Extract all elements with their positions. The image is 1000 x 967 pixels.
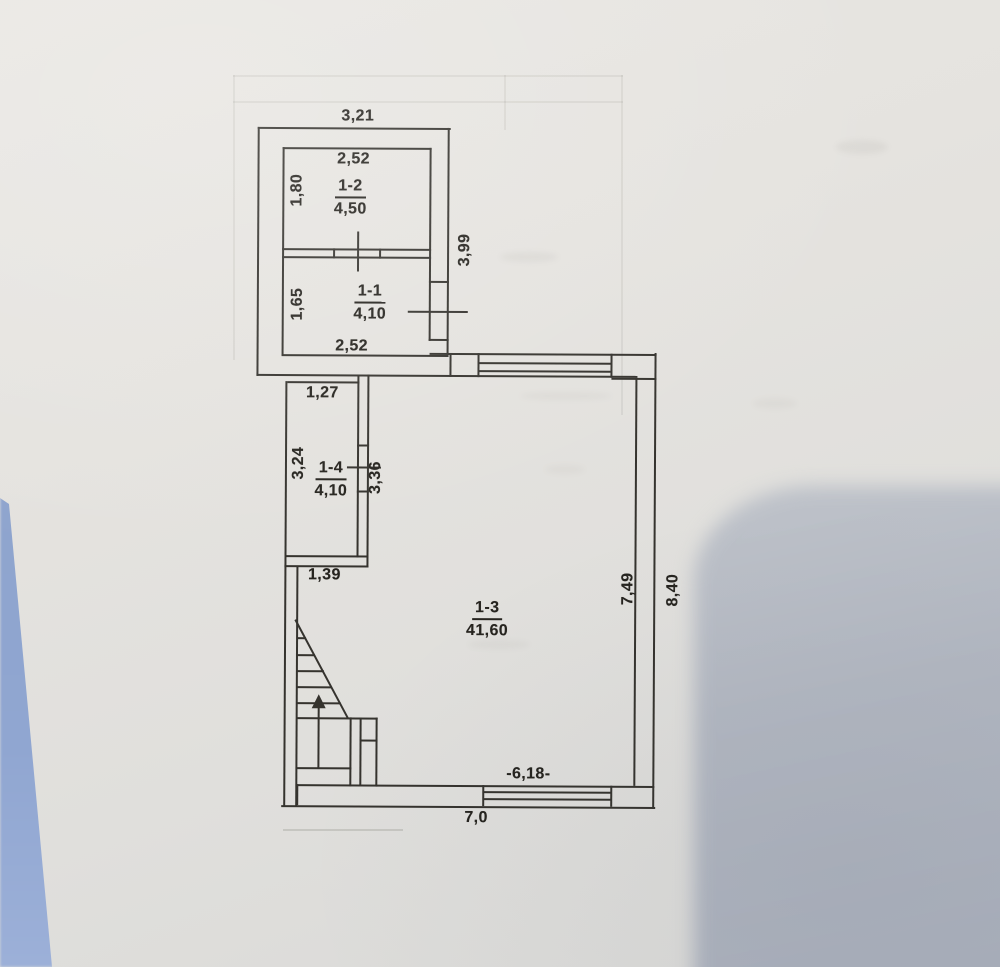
wall-divider — [357, 444, 369, 446]
room-area: 4,10 — [314, 482, 347, 500]
stair-step — [297, 654, 315, 656]
wall-line — [282, 147, 285, 355]
wall-line — [287, 381, 359, 383]
wall-divider — [610, 354, 612, 378]
dim-top-width: 3,21 — [341, 107, 374, 125]
photo-corner-shadow — [694, 486, 1000, 967]
wall-divider — [429, 339, 449, 341]
wall-line — [430, 353, 657, 356]
dim-r12-width: 2,52 — [337, 150, 370, 168]
closet-line — [360, 739, 378, 741]
wall-line — [256, 127, 259, 376]
wall-line — [258, 127, 451, 130]
wall-divider — [449, 353, 451, 377]
wall-line — [283, 147, 432, 150]
stair-step — [297, 670, 324, 672]
wall-divider — [477, 353, 479, 377]
room-area: 41,60 — [466, 622, 508, 640]
closet-line — [349, 717, 351, 786]
dim-r12-depth: 1,80 — [288, 174, 306, 207]
window-line — [478, 370, 610, 373]
wall-line — [286, 555, 368, 557]
stairs-direction-line — [317, 699, 319, 768]
room-label-1-4: 1-4 4,10 — [314, 459, 347, 500]
dim-main-inner-height: 7,49 — [619, 572, 637, 605]
door-tick — [357, 231, 359, 271]
wall-line — [652, 353, 656, 808]
dim-r11-width: 2,52 — [335, 337, 368, 355]
room-label-1-3: 1-3 41,60 — [466, 599, 508, 640]
window-line — [483, 798, 611, 801]
dim-top-block-height: 3,99 — [456, 234, 474, 267]
dim-r14-top-width: 1,27 — [306, 384, 339, 402]
stair-step — [297, 637, 306, 639]
room-id: 1-2 — [335, 177, 365, 198]
door-tick — [408, 311, 468, 313]
dim-r14-inner-height: 3,36 — [367, 461, 385, 494]
stair-landing — [297, 717, 378, 719]
room-label-1-1: 1-1 4,10 — [353, 282, 386, 323]
dim-r14-height: 3,24 — [290, 447, 308, 480]
room-label-1-2: 1-2 4,50 — [334, 177, 367, 218]
room-id: 1-4 — [316, 459, 346, 480]
stair-step — [297, 686, 332, 688]
wall-divider — [429, 281, 449, 283]
wall-line — [256, 374, 637, 378]
dim-main-outer-height: 8,40 — [664, 574, 682, 607]
room-id: 1-1 — [355, 282, 385, 303]
room-id: 1-3 — [472, 599, 502, 620]
dim-main-inner-width: -6,18- — [506, 765, 550, 783]
window-line — [479, 362, 611, 365]
closet-line — [375, 718, 377, 787]
room-area: 4,10 — [353, 305, 386, 323]
wall-divider — [482, 785, 484, 806]
room-area: 4,50 — [334, 200, 367, 218]
window-line — [483, 791, 611, 794]
dim-main-outer-width: 7,0 — [464, 809, 488, 827]
door-jamb — [379, 249, 381, 259]
stair-landing — [296, 767, 351, 769]
wall-line — [611, 378, 656, 380]
stairs-up-arrow-icon — [312, 694, 326, 708]
dim-r11-depth: 1,65 — [289, 288, 307, 321]
door-jamb — [333, 248, 335, 258]
wall-line — [447, 128, 450, 355]
wall-line — [283, 381, 287, 806]
dim-r14-bottom-width: 1,39 — [308, 566, 341, 584]
wall-divider — [610, 786, 612, 807]
floor-plan-photo: 3,21 2,52 1,80 3,99 1,65 2,52 1,27 3,24 … — [0, 0, 1000, 967]
closet-line — [359, 717, 361, 786]
